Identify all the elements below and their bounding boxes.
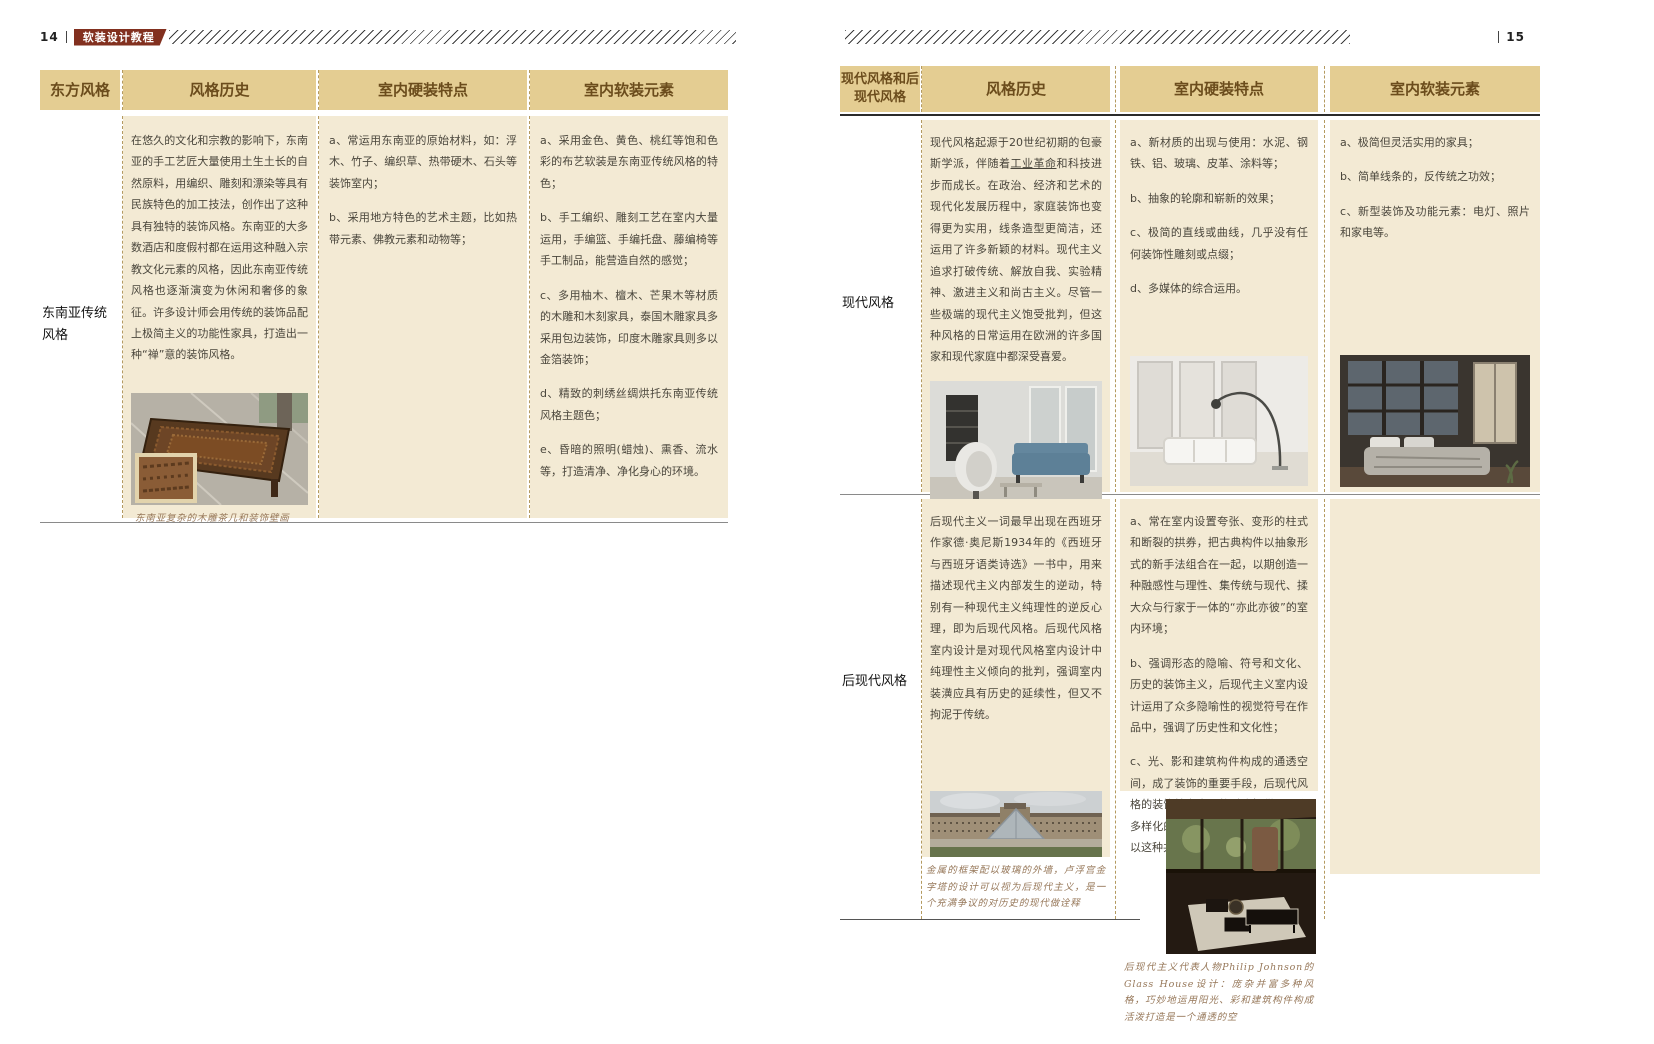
row-label: 后现代风格 [842,674,907,689]
table-row-modern: 现代风格 现代风格起源于20世纪初期的包豪斯学派，伴随着工业革命和科技进步而成长… [840,120,1540,492]
hard-feature-item: a、常在室内设置夸张、变形的柱式和断裂的拱券，把古典构件以抽象形式的新手法组合在… [1130,511,1308,640]
hard-features-block: a、常在室内设置夸张、变形的柱式和断裂的拱券，把古典构件以抽象形式的新手法组合在… [1120,499,1318,791]
photo-glass-house [1166,799,1318,954]
soft-element-item: b、简单线条的，反传统之功效； [1340,166,1530,187]
column-header-hard: 室内硬装特点 [319,70,527,110]
row-label: 东南亚传统风格 [42,306,107,343]
modern-style-table: 现代风格和后现代风格 风格历史 室内硬装特点 室内软装元素 现代风格 现代风格起… [840,66,1540,920]
photo-arc-lamp-room [1130,356,1308,486]
table-row-postmodern: 后现代风格 后现代主义一词最早出现在西班牙作家德·奥尼斯1934年的《西班牙与西… [840,499,1540,919]
glass-house-caption: 后现代主义代表人物Philip Johnson的Glass House设计：庞杂… [1124,960,1314,1027]
book-title-badge: 软装设计教程 [74,29,167,46]
column-divider [1318,120,1330,492]
column-header-hard: 室内硬装特点 [1120,66,1318,112]
history-block: 后现代主义一词最早出现在西班牙作家德·奥尼斯1934年的《西班牙与西班牙语类诗选… [922,499,1110,857]
column-divider [527,116,530,518]
carved-table-image [131,393,308,505]
photo-carved-table [131,393,308,505]
column-header-history: 风格历史 [123,70,316,110]
column-header-style: 东方风格 [40,70,120,110]
column-header-style: 现代风格和后现代风格 [840,66,920,112]
eastern-style-table: 东方风格 风格历史 室内硬装特点 室内软装元素 东南亚传统风格 在悠久的文化和宗… [40,70,728,523]
louvre-caption: 金属的框架配以玻璃的外墙，卢浮宫金字塔的设计可以视为后现代主义，是一个充满争议的… [926,863,1106,913]
soft-elements-cell: a、采用金色、黄色、桃红等饱和色彩的布艺软装是东南亚传统风格的特色； b、手工编… [530,116,728,518]
photo-modern-living [930,381,1102,511]
soft-element-item: d、精致的刺绣丝绸烘托东南亚传统风格主题色； [540,383,718,426]
column-divider [1318,66,1330,112]
photo-industrial-bedroom [1340,355,1530,487]
column-divider [1110,120,1120,492]
soft-element-item: a、极简但灵活实用的家具； [1340,132,1530,153]
soft-element-item: e、昏暗的照明(蜡烛)、熏香、流水等，打造清净、净化身心的环境。 [540,439,718,482]
column-divider [527,70,530,110]
page-number-left: 14 [40,30,59,44]
page-number-divider-left [66,31,67,43]
hard-feature-item: a、常运用东南亚的原始材料，如：浮木、竹子、编织草、热带硬木、石头等装饰室内； [329,130,517,194]
column-divider [1110,66,1120,112]
hard-feature-item: a、新材质的出现与使用：水泥、钢铁、铝、玻璃、皮革、涂料等； [1130,132,1308,175]
photo-caption: 东南亚复杂的木雕茶几和装饰壁画 [135,511,304,528]
table-row-southeast-asia: 东南亚传统风格 在悠久的文化和宗教的影响下，东南亚的手工艺匠大量使用土生土长的自… [40,116,728,518]
hard-feature-item: b、强调形态的隐喻、符号和文化、历史的装饰主义，后现代主义室内设计运用了众多隐喻… [1130,653,1308,739]
soft-element-item: c、新型装饰及功能元素：电灯、照片和家电等。 [1340,201,1530,244]
row-label: 现代风格 [842,296,894,311]
column-divider [1110,499,1120,919]
hard-features-cell: a、常运用东南亚的原始材料，如：浮木、竹子、编织草、热带硬木、石头等装饰室内； … [319,116,527,518]
louvre-image [930,791,1102,857]
column-header-soft: 室内软装元素 [1330,66,1540,112]
page-header-right: 15 [845,28,1525,46]
modern-living-image [930,381,1102,511]
hard-feature-item: b、采用地方特色的艺术主题，比如热带元素、佛教元素和动物等； [329,207,517,250]
row-label-cell: 现代风格 [840,120,920,492]
page-number-right: 15 [1506,30,1525,44]
hard-features-cell: a、新材质的出现与使用：水泥、钢铁、铝、玻璃、皮革、涂料等； b、抽象的轮廓和崭… [1120,120,1318,492]
column-divider [120,116,123,518]
glass-house-image [1166,799,1316,954]
soft-elements-cell-empty [1330,499,1540,874]
underlined-term: 工业革命 [1011,157,1057,170]
table-header-row: 现代风格和后现代风格 风格历史 室内硬装特点 室内软装元素 [840,66,1540,112]
history-cell: 现代风格起源于20世纪初期的包豪斯学派，伴随着工业革命和科技进步而成长。在政治、… [922,120,1110,492]
column-divider [920,120,922,492]
hard-feature-item: c、极简的直线或曲线，几乎没有任何装饰性雕刻或点缀； [1130,222,1308,265]
column-divider [316,116,319,518]
row-label-cell: 后现代风格 [840,499,920,919]
column-divider [920,66,922,112]
hatch-pattern-right [845,30,1350,44]
soft-elements-cell: a、极简但灵活实用的家具； b、简单线条的，反传统之功效； c、新型装饰及功能元… [1330,120,1540,492]
column-divider [1318,499,1330,919]
column-header-history: 风格历史 [922,66,1110,112]
history-text: 现代风格起源于20世纪初期的包豪斯学派，伴随着工业革命和科技进步而成长。在政治、… [930,132,1102,368]
history-cell: 后现代主义一词最早出现在西班牙作家德·奥尼斯1934年的《西班牙与西班牙语类诗选… [922,499,1110,913]
hard-feature-item: d、多媒体的综合运用。 [1130,278,1308,299]
hard-feature-item: b、抽象的轮廓和崭新的效果； [1130,188,1308,209]
hard-features-cell: a、常在室内设置夸张、变形的柱式和断裂的拱券，把古典构件以抽象形式的新手法组合在… [1120,499,1318,1027]
history-text: 在悠久的文化和宗教的影响下，东南亚的手工艺匠大量使用土生土长的自然原料，用编织、… [131,130,308,366]
row-label-cell: 东南亚传统风格 [40,116,120,518]
industrial-bedroom-image [1340,355,1530,487]
table-bottom-rule-partial [840,919,1140,920]
soft-element-item: a、采用金色、黄色、桃红等饱和色彩的布艺软装是东南亚传统风格的特色； [540,130,718,194]
column-header-soft: 室内软装元素 [530,70,728,110]
column-divider [920,499,922,919]
photo-louvre [930,791,1102,857]
history-cell: 在悠久的文化和宗教的影响下，东南亚的手工艺匠大量使用土生土长的自然原料，用编织、… [123,116,316,518]
page-header-left: 14 软装设计教程 [40,28,736,46]
header-bottom-rule [840,114,1540,116]
arc-lamp-room-image [1130,356,1308,486]
column-divider [120,70,123,110]
history-text: 后现代主义一词最早出现在西班牙作家德·奥尼斯1934年的《西班牙与西班牙语类诗选… [930,511,1102,725]
page-number-divider-right [1498,31,1499,43]
column-divider [316,70,319,110]
hatch-pattern-left [169,30,736,44]
soft-element-item: c、多用柚木、檀木、芒果木等材质的木雕和木刻家具，泰国木雕家具多采用包边装饰，印… [540,285,718,371]
soft-element-item: b、手工编织、雕刻工艺在室内大量运用，手编篮、手编托盘、藤编椅等手工制品，能营造… [540,207,718,271]
table-header-row: 东方风格 风格历史 室内硬装特点 室内软装元素 [40,70,728,110]
